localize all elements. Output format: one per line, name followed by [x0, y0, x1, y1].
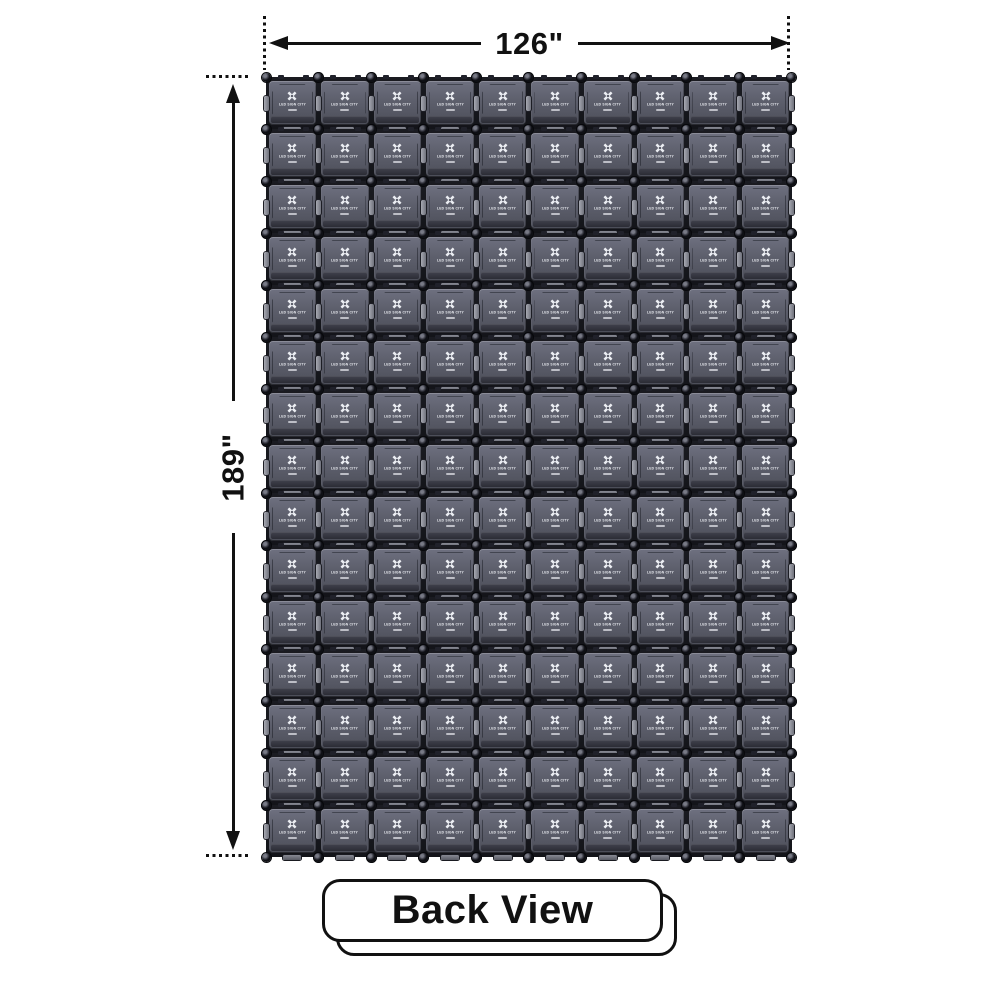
- brand-x-icon: [498, 195, 508, 205]
- interlock-tab: [383, 803, 389, 807]
- corner-screw-icon: [735, 697, 744, 706]
- panel-logo: LED SIGN CITY: [634, 195, 687, 215]
- led-panel: LED SIGN CITY: [582, 233, 635, 285]
- interlock-tab: [618, 803, 624, 807]
- brand-x-icon: [603, 143, 613, 153]
- panel-brand-text: LED SIGN CITY: [279, 103, 306, 106]
- led-panel: LED SIGN CITY: [634, 649, 687, 701]
- interlock-tab: [435, 283, 441, 287]
- height-dimension: 189": [220, 84, 246, 850]
- interlock-tab: [541, 387, 547, 391]
- panel-brand-text: LED SIGN CITY: [279, 779, 306, 782]
- corner-screw-icon: [472, 437, 481, 446]
- corner-screw-icon: [682, 645, 691, 654]
- panel-brand-text: LED SIGN CITY: [437, 623, 464, 626]
- led-panel: LED SIGN CITY: [424, 77, 477, 129]
- interlock-tab: [461, 543, 467, 547]
- interlock-tab: [435, 179, 441, 183]
- interlock-tab: [618, 543, 624, 547]
- led-panel: LED SIGN CITY: [687, 649, 740, 701]
- panel-label-tag: [393, 785, 402, 788]
- corner-screw-icon: [419, 177, 428, 186]
- side-handle-icon: [421, 720, 426, 735]
- led-panel: LED SIGN CITY: [687, 701, 740, 753]
- interlock-tab: [408, 75, 414, 79]
- corner-screw-icon: [472, 593, 481, 602]
- panel-label-tag: [446, 421, 455, 424]
- corner-screw-icon: [524, 697, 533, 706]
- led-panel: LED SIGN CITY: [739, 389, 792, 441]
- panel-brand-text: LED SIGN CITY: [384, 831, 411, 834]
- brand-x-icon: [708, 143, 718, 153]
- panel-brand-text: LED SIGN CITY: [594, 831, 621, 834]
- panel-brand-text: LED SIGN CITY: [542, 415, 569, 418]
- brand-x-icon: [603, 819, 613, 829]
- width-extension-line-left: [263, 16, 266, 70]
- panel-logo: LED SIGN CITY: [476, 247, 529, 267]
- led-panel: LED SIGN CITY: [476, 233, 529, 285]
- panel-brand-text: LED SIGN CITY: [542, 571, 569, 574]
- corner-screw-icon: [314, 229, 323, 238]
- panel-brand-text: LED SIGN CITY: [700, 467, 727, 470]
- side-handle-icon: [369, 356, 374, 371]
- brand-x-icon: [498, 299, 508, 309]
- panel-logo: LED SIGN CITY: [687, 507, 740, 527]
- corner-screw-icon: [524, 385, 533, 394]
- panel-brand-text: LED SIGN CITY: [384, 259, 411, 262]
- panel-brand-text: LED SIGN CITY: [279, 831, 306, 834]
- panel-logo: LED SIGN CITY: [476, 819, 529, 839]
- interlock-tab: [671, 75, 677, 79]
- interlock-tab: [724, 283, 730, 287]
- corner-screw-icon: [682, 73, 691, 82]
- corner-screw-icon: [787, 541, 796, 550]
- panel-brand-text: LED SIGN CITY: [752, 623, 779, 626]
- led-panel: LED SIGN CITY: [634, 545, 687, 597]
- panel-label-tag: [288, 837, 297, 840]
- panel-logo: LED SIGN CITY: [266, 195, 319, 215]
- led-panel: LED SIGN CITY: [529, 129, 582, 181]
- panel-logo: LED SIGN CITY: [739, 819, 792, 839]
- interlock-tab: [408, 231, 414, 235]
- led-panel: LED SIGN CITY: [739, 805, 792, 857]
- brand-x-icon: [498, 819, 508, 829]
- brand-x-icon: [550, 299, 560, 309]
- interlock-tab: [618, 179, 624, 183]
- brand-x-icon: [287, 351, 297, 361]
- panel-logo: LED SIGN CITY: [476, 767, 529, 787]
- led-panel: LED SIGN CITY: [424, 597, 477, 649]
- interlock-tab: [408, 803, 414, 807]
- side-handle-icon: [474, 668, 479, 683]
- side-handle-icon: [737, 304, 742, 319]
- panel-logo: LED SIGN CITY: [582, 455, 635, 475]
- panel-brand-text: LED SIGN CITY: [331, 779, 358, 782]
- interlock-tab: [776, 543, 782, 547]
- led-panel: LED SIGN CITY: [424, 701, 477, 753]
- panel-logo: LED SIGN CITY: [687, 611, 740, 631]
- panel-logo: LED SIGN CITY: [687, 247, 740, 267]
- interlock-tab: [488, 283, 494, 287]
- panel-logo: LED SIGN CITY: [582, 351, 635, 371]
- panel-logo: LED SIGN CITY: [529, 195, 582, 215]
- side-handle-icon: [316, 252, 321, 267]
- panel-brand-text: LED SIGN CITY: [279, 727, 306, 730]
- interlock-tab: [513, 595, 519, 599]
- side-handle-icon: [474, 512, 479, 527]
- panel-label-tag: [709, 837, 718, 840]
- panel-logo: LED SIGN CITY: [739, 767, 792, 787]
- panel-brand-text: LED SIGN CITY: [752, 831, 779, 834]
- led-panel: LED SIGN CITY: [739, 597, 792, 649]
- panel-brand-text: LED SIGN CITY: [384, 363, 411, 366]
- side-handle-icon: [579, 252, 584, 267]
- panel-brand-text: LED SIGN CITY: [331, 259, 358, 262]
- brand-x-icon: [550, 143, 560, 153]
- interlock-tab: [461, 491, 467, 495]
- interlock-tab: [566, 179, 572, 183]
- brand-x-icon: [392, 403, 402, 413]
- interlock-tab: [671, 127, 677, 131]
- panel-label-tag: [288, 109, 297, 112]
- interlock-tab: [330, 283, 336, 287]
- brand-x-icon: [445, 455, 455, 465]
- side-handle-icon: [737, 408, 742, 423]
- brand-x-icon: [340, 715, 350, 725]
- side-handle-icon: [684, 564, 689, 579]
- interlock-tab: [751, 231, 757, 235]
- led-panel: LED SIGN CITY: [371, 545, 424, 597]
- corner-screw-icon: [524, 593, 533, 602]
- panel-label-tag: [709, 421, 718, 424]
- panel-logo: LED SIGN CITY: [529, 767, 582, 787]
- panel-label-tag: [340, 213, 349, 216]
- corner-screw-icon: [577, 437, 586, 446]
- brand-x-icon: [340, 403, 350, 413]
- corner-screw-icon: [472, 801, 481, 810]
- brand-x-icon: [392, 663, 402, 673]
- led-panel: LED SIGN CITY: [634, 77, 687, 129]
- interlock-tab: [461, 335, 467, 339]
- led-panel: LED SIGN CITY: [634, 493, 687, 545]
- led-panel: LED SIGN CITY: [582, 597, 635, 649]
- interlock-tab: [330, 439, 336, 443]
- corner-screw-icon: [314, 593, 323, 602]
- panel-label-tag: [393, 629, 402, 632]
- corner-screw-icon: [419, 229, 428, 238]
- panel-label-tag: [656, 421, 665, 424]
- interlock-tab: [435, 751, 441, 755]
- panel-label-tag: [393, 733, 402, 736]
- corner-screw-icon: [419, 853, 428, 862]
- panel-logo: LED SIGN CITY: [476, 663, 529, 683]
- interlock-tab: [383, 439, 389, 443]
- interlock-tab: [278, 335, 284, 339]
- interlock-tab: [383, 751, 389, 755]
- panel-logo: LED SIGN CITY: [424, 247, 477, 267]
- corner-screw-icon: [524, 749, 533, 758]
- panel-label-tag: [340, 317, 349, 320]
- led-panel: LED SIGN CITY: [266, 545, 319, 597]
- corner-screw-icon: [682, 593, 691, 602]
- led-panel: LED SIGN CITY: [739, 701, 792, 753]
- panel-brand-text: LED SIGN CITY: [437, 363, 464, 366]
- corner-screw-icon: [630, 73, 639, 82]
- corner-screw-icon: [682, 385, 691, 394]
- panel-label-tag: [498, 317, 507, 320]
- bottom-connector: [757, 855, 775, 860]
- panel-label-tag: [656, 681, 665, 684]
- led-panel: LED SIGN CITY: [476, 129, 529, 181]
- panel-brand-text: LED SIGN CITY: [752, 311, 779, 314]
- led-panel: LED SIGN CITY: [739, 77, 792, 129]
- interlock-tab: [303, 439, 309, 443]
- side-handle-icon: [737, 96, 742, 111]
- panel-brand-text: LED SIGN CITY: [542, 623, 569, 626]
- panel-brand-text: LED SIGN CITY: [752, 259, 779, 262]
- led-panel: LED SIGN CITY: [634, 285, 687, 337]
- panel-logo: LED SIGN CITY: [319, 403, 372, 423]
- side-handle-icon: [684, 408, 689, 423]
- panel-logo: LED SIGN CITY: [266, 559, 319, 579]
- panel-logo: LED SIGN CITY: [687, 91, 740, 111]
- side-handle-icon: [421, 564, 426, 579]
- panel-brand-text: LED SIGN CITY: [489, 311, 516, 314]
- brand-x-icon: [445, 663, 455, 673]
- side-handle-icon: [737, 460, 742, 475]
- panel-logo: LED SIGN CITY: [266, 507, 319, 527]
- side-handle-icon: [369, 148, 374, 163]
- side-handle-icon: [421, 304, 426, 319]
- side-handle-icon: [264, 564, 269, 579]
- interlock-tab: [513, 751, 519, 755]
- panel-label-tag: [498, 109, 507, 112]
- corner-screw-icon: [577, 593, 586, 602]
- panel-brand-text: LED SIGN CITY: [331, 519, 358, 522]
- panel-label-tag: [761, 629, 770, 632]
- panel-label-tag: [603, 421, 612, 424]
- interlock-tab: [461, 231, 467, 235]
- corner-screw-icon: [314, 541, 323, 550]
- panel-label-tag: [709, 213, 718, 216]
- interlock-tab: [461, 439, 467, 443]
- interlock-tab: [408, 647, 414, 651]
- panel-label-tag: [551, 421, 560, 424]
- interlock-tab: [303, 75, 309, 79]
- panel-label-tag: [446, 629, 455, 632]
- corner-screw-icon: [314, 281, 323, 290]
- led-panel: LED SIGN CITY: [739, 129, 792, 181]
- corner-screw-icon: [367, 749, 376, 758]
- interlock-tab: [435, 387, 441, 391]
- interlock-tab: [330, 75, 336, 79]
- panel-label-tag: [656, 577, 665, 580]
- panel-brand-text: LED SIGN CITY: [647, 103, 674, 106]
- side-handle-icon: [369, 564, 374, 579]
- height-extension-line-bottom: [206, 854, 251, 857]
- panel-label-tag: [761, 161, 770, 164]
- panel-brand-text: LED SIGN CITY: [542, 207, 569, 210]
- brand-x-icon: [708, 819, 718, 829]
- interlock-tab: [724, 491, 730, 495]
- led-panel: LED SIGN CITY: [371, 441, 424, 493]
- side-handle-icon: [579, 512, 584, 527]
- panel-label-tag: [393, 577, 402, 580]
- panel-logo: LED SIGN CITY: [319, 767, 372, 787]
- corner-screw-icon: [524, 333, 533, 342]
- led-panel: LED SIGN CITY: [739, 181, 792, 233]
- brand-x-icon: [340, 195, 350, 205]
- dimension-line: [232, 103, 235, 401]
- panel-logo: LED SIGN CITY: [319, 351, 372, 371]
- panel-brand-text: LED SIGN CITY: [594, 571, 621, 574]
- side-handle-icon: [316, 824, 321, 839]
- interlock-tab: [751, 387, 757, 391]
- interlock-tab: [566, 387, 572, 391]
- led-panel: LED SIGN CITY: [371, 493, 424, 545]
- panel-label-tag: [340, 525, 349, 528]
- panel-label-tag: [393, 473, 402, 476]
- brand-x-icon: [498, 455, 508, 465]
- panel-label-tag: [603, 317, 612, 320]
- panel-brand-text: LED SIGN CITY: [437, 415, 464, 418]
- panel-brand-text: LED SIGN CITY: [384, 571, 411, 574]
- panel-brand-text: LED SIGN CITY: [700, 519, 727, 522]
- led-panel: LED SIGN CITY: [582, 701, 635, 753]
- panel-logo: LED SIGN CITY: [371, 455, 424, 475]
- corner-screw-icon: [262, 385, 271, 394]
- interlock-tab: [698, 127, 704, 131]
- panel-label-tag: [446, 733, 455, 736]
- interlock-tab: [355, 335, 361, 339]
- side-handle-icon: [421, 460, 426, 475]
- brand-x-icon: [340, 351, 350, 361]
- led-panel: LED SIGN CITY: [476, 649, 529, 701]
- brand-x-icon: [550, 455, 560, 465]
- panel-logo: LED SIGN CITY: [476, 195, 529, 215]
- brand-x-icon: [392, 819, 402, 829]
- interlock-tab: [646, 699, 652, 703]
- panel-logo: LED SIGN CITY: [687, 195, 740, 215]
- corner-screw-icon: [419, 801, 428, 810]
- led-panel: LED SIGN CITY: [476, 181, 529, 233]
- interlock-tab: [593, 335, 599, 339]
- interlock-tab: [671, 543, 677, 547]
- interlock-tab: [513, 647, 519, 651]
- panel-brand-text: LED SIGN CITY: [489, 415, 516, 418]
- led-panel: LED SIGN CITY: [739, 337, 792, 389]
- interlock-tab: [593, 283, 599, 287]
- interlock-tab: [776, 595, 782, 599]
- interlock-tab: [671, 803, 677, 807]
- brand-x-icon: [708, 299, 718, 309]
- interlock-tab: [566, 439, 572, 443]
- corner-screw-icon: [367, 489, 376, 498]
- led-panel: LED SIGN CITY: [687, 493, 740, 545]
- panel-label-tag: [761, 577, 770, 580]
- interlock-tab: [776, 647, 782, 651]
- corner-screw-icon: [524, 489, 533, 498]
- panel-grid: LED SIGN CITY LED SIGN CITY: [266, 77, 792, 857]
- interlock-tab: [618, 75, 624, 79]
- interlock-tab: [698, 647, 704, 651]
- led-panel: LED SIGN CITY: [739, 753, 792, 805]
- panel-logo: LED SIGN CITY: [529, 611, 582, 631]
- panel-logo: LED SIGN CITY: [687, 455, 740, 475]
- brand-x-icon: [445, 143, 455, 153]
- panel-label-tag: [393, 421, 402, 424]
- brand-x-icon: [761, 507, 771, 517]
- side-handle-icon: [526, 512, 531, 527]
- led-panel: LED SIGN CITY: [266, 77, 319, 129]
- corner-screw-icon: [682, 229, 691, 238]
- panel-logo: LED SIGN CITY: [634, 455, 687, 475]
- interlock-tab: [303, 751, 309, 755]
- view-badge-label: Back View: [392, 888, 594, 933]
- interlock-tab: [541, 595, 547, 599]
- led-panel: LED SIGN CITY: [739, 285, 792, 337]
- brand-x-icon: [708, 715, 718, 725]
- corner-screw-icon: [262, 177, 271, 186]
- panel-brand-text: LED SIGN CITY: [437, 311, 464, 314]
- led-panel: LED SIGN CITY: [371, 597, 424, 649]
- interlock-tab: [303, 543, 309, 547]
- interlock-tab: [541, 647, 547, 651]
- side-handle-icon: [526, 252, 531, 267]
- corner-screw-icon: [787, 385, 796, 394]
- led-panel: LED SIGN CITY: [634, 181, 687, 233]
- panel-logo: LED SIGN CITY: [687, 559, 740, 579]
- interlock-tab: [461, 699, 467, 703]
- interlock-tab: [408, 699, 414, 703]
- panel-brand-text: LED SIGN CITY: [279, 207, 306, 210]
- side-handle-icon: [526, 772, 531, 787]
- panel-label-tag: [603, 525, 612, 528]
- panel-brand-text: LED SIGN CITY: [700, 207, 727, 210]
- panel-brand-text: LED SIGN CITY: [489, 103, 516, 106]
- panel-logo: LED SIGN CITY: [634, 247, 687, 267]
- interlock-tab: [698, 751, 704, 755]
- panel-label-tag: [709, 525, 718, 528]
- side-handle-icon: [737, 772, 742, 787]
- panel-brand-text: LED SIGN CITY: [384, 207, 411, 210]
- interlock-tab: [776, 283, 782, 287]
- interlock-tab: [751, 127, 757, 131]
- brand-x-icon: [550, 91, 560, 101]
- corner-screw-icon: [630, 801, 639, 810]
- panel-label-tag: [709, 681, 718, 684]
- interlock-tab: [646, 231, 652, 235]
- panel-label-tag: [340, 837, 349, 840]
- panel-label-tag: [446, 785, 455, 788]
- side-handle-icon: [264, 252, 269, 267]
- corner-screw-icon: [577, 645, 586, 654]
- interlock-tab: [303, 595, 309, 599]
- brand-x-icon: [340, 299, 350, 309]
- corner-screw-icon: [314, 177, 323, 186]
- interlock-tab: [330, 803, 336, 807]
- brand-x-icon: [392, 455, 402, 465]
- interlock-tab: [541, 439, 547, 443]
- panel-brand-text: LED SIGN CITY: [542, 311, 569, 314]
- interlock-tab: [698, 75, 704, 79]
- interlock-tab: [408, 543, 414, 547]
- brand-x-icon: [340, 247, 350, 257]
- panel-label-tag: [656, 629, 665, 632]
- panel-logo: LED SIGN CITY: [371, 559, 424, 579]
- interlock-tab: [513, 439, 519, 443]
- panel-logo: LED SIGN CITY: [424, 143, 477, 163]
